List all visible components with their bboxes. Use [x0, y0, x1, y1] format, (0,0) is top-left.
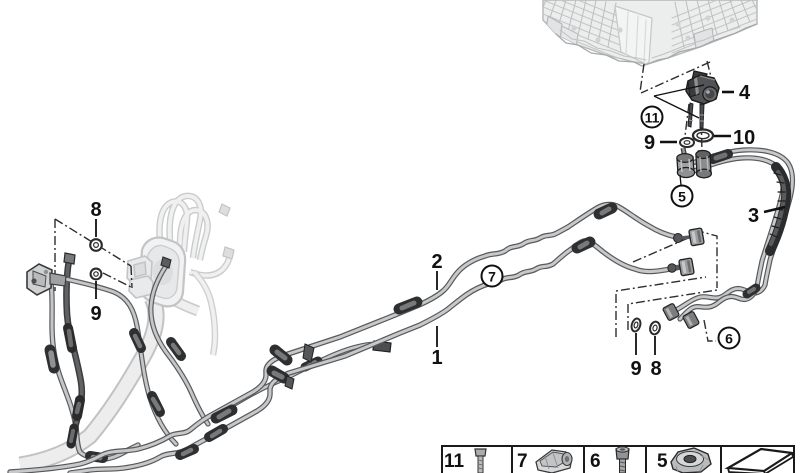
svg-text:4: 4 [739, 82, 751, 104]
svg-text:11: 11 [645, 110, 660, 126]
svg-text:5: 5 [657, 451, 668, 472]
svg-text:9: 9 [90, 303, 101, 325]
svg-text:10: 10 [733, 127, 755, 149]
svg-text:7: 7 [488, 269, 496, 285]
svg-text:6: 6 [725, 331, 733, 347]
svg-text:8: 8 [650, 358, 661, 380]
svg-text:6: 6 [590, 451, 601, 472]
svg-text:11: 11 [444, 451, 465, 472]
svg-text:8: 8 [90, 199, 101, 221]
svg-text:1: 1 [431, 347, 442, 369]
svg-text:3: 3 [748, 205, 759, 227]
svg-text:9: 9 [644, 132, 655, 154]
svg-text:7: 7 [517, 451, 528, 472]
svg-text:9: 9 [630, 358, 641, 380]
svg-text:5: 5 [678, 189, 686, 205]
svg-text:2: 2 [431, 251, 442, 273]
